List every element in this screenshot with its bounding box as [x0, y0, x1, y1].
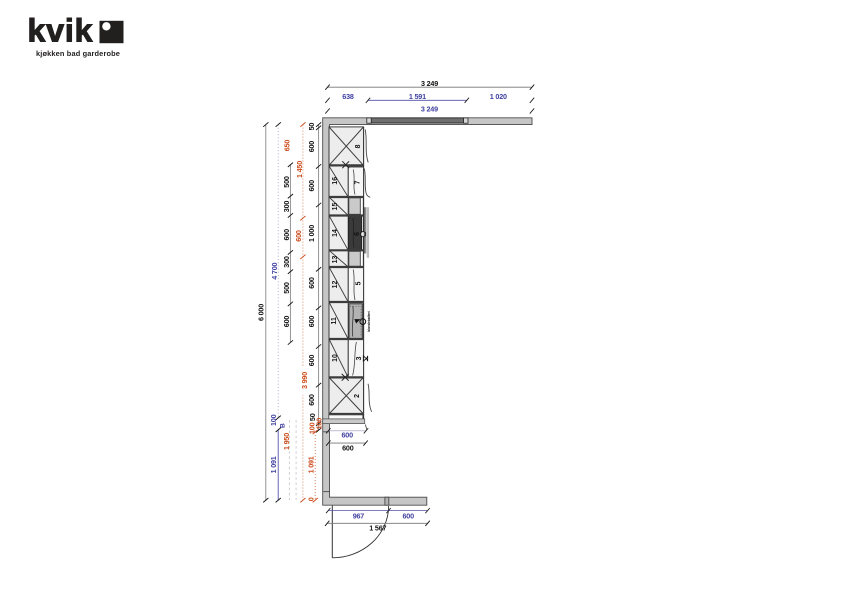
svg-text:600: 600 [307, 394, 316, 406]
svg-text:600: 600 [341, 431, 353, 440]
svg-text:1 091: 1 091 [306, 456, 315, 473]
svg-text:1 091: 1 091 [269, 456, 278, 473]
svg-text:600: 600 [282, 229, 291, 241]
svg-text:5: 5 [356, 281, 363, 285]
svg-text:600: 600 [282, 316, 291, 328]
svg-text:100: 100 [269, 414, 278, 426]
svg-text:12: 12 [332, 281, 339, 289]
svg-text:1 567: 1 567 [369, 524, 386, 533]
svg-text:600: 600 [342, 443, 354, 452]
svg-text:8: 8 [355, 144, 362, 148]
svg-text:2: 2 [354, 394, 361, 398]
svg-text:600: 600 [307, 316, 316, 328]
svg-text:kvik: kvik [28, 13, 94, 49]
svg-text:650: 650 [282, 140, 291, 152]
svg-text:3 249: 3 249 [421, 79, 438, 88]
svg-text:600: 600 [307, 355, 316, 367]
svg-text:kjøkken bad garderobe: kjøkken bad garderobe [36, 49, 120, 58]
svg-text:14: 14 [332, 229, 339, 237]
svg-text:11: 11 [331, 317, 338, 324]
svg-text:600: 600 [307, 141, 316, 153]
svg-text:7: 7 [355, 180, 362, 184]
svg-text:3: 3 [356, 356, 363, 360]
svg-text:6 000: 6 000 [257, 304, 266, 321]
svg-text:1 591: 1 591 [409, 92, 426, 101]
svg-text:1 020: 1 020 [490, 92, 507, 101]
svg-text:967: 967 [353, 511, 365, 520]
svg-text:638: 638 [342, 92, 354, 101]
svg-text:600: 600 [402, 511, 414, 520]
svg-text:600: 600 [307, 180, 316, 192]
svg-text:B: B [280, 423, 287, 428]
svg-text:10: 10 [332, 354, 339, 362]
svg-text:13: 13 [332, 256, 339, 264]
svg-text:16: 16 [332, 177, 339, 185]
svg-text:600: 600 [307, 277, 316, 289]
svg-text:15: 15 [332, 203, 339, 211]
svg-text:500: 500 [282, 176, 291, 188]
svg-text:300: 300 [282, 201, 291, 213]
svg-text:600: 600 [294, 230, 303, 242]
svg-text:50: 50 [307, 123, 316, 131]
svg-text:3 249: 3 249 [421, 104, 438, 113]
svg-text:300: 300 [282, 256, 291, 268]
svg-text:1 450: 1 450 [295, 161, 304, 178]
svg-text:500: 500 [282, 282, 291, 294]
svg-text:blandebatteri: blandebatteri [367, 311, 371, 332]
svg-text:3 990: 3 990 [300, 372, 309, 389]
svg-text:4 700: 4 700 [270, 263, 279, 280]
svg-text:1 000: 1 000 [307, 225, 316, 242]
